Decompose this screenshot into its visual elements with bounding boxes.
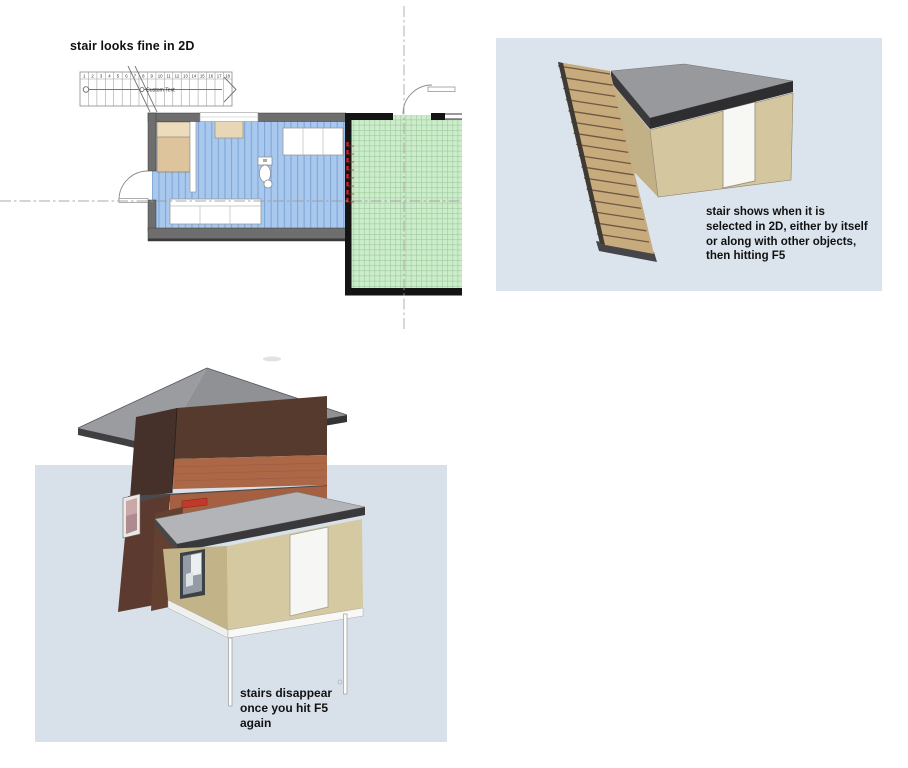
svg-text:17: 17 bbox=[217, 73, 222, 78]
room-green bbox=[348, 115, 462, 291]
floor-plan-drawing: 1 2 3 4 5 6 7 8 9 10 11 12 13 14 15 16 1… bbox=[0, 0, 470, 340]
bug-report-image: stair looks fine in 2D 1 2 3 4 5 6 7 bbox=[0, 0, 908, 768]
addition-window bbox=[180, 549, 205, 599]
sink bbox=[264, 180, 272, 188]
render-bottom-caption: stairs disappear once you hit F5 again bbox=[240, 686, 400, 731]
svg-text:18: 18 bbox=[225, 73, 230, 78]
artifact-smudge bbox=[263, 357, 281, 362]
toilet bbox=[258, 157, 272, 182]
svg-text:15: 15 bbox=[200, 73, 205, 78]
bed bbox=[157, 122, 190, 172]
render-top-caption: stair shows when it is selected in 2D, e… bbox=[706, 205, 888, 264]
svg-text:14: 14 bbox=[192, 73, 197, 78]
stair-label: Custom Text bbox=[146, 88, 175, 94]
sofa bbox=[170, 199, 261, 224]
hut-3d bbox=[611, 64, 793, 197]
svg-text:13: 13 bbox=[183, 73, 188, 78]
label-marker bbox=[140, 88, 144, 92]
window-top bbox=[200, 113, 258, 122]
upper-left-wall bbox=[130, 408, 177, 498]
table bbox=[283, 128, 343, 155]
house-window bbox=[123, 494, 140, 538]
svg-text:11: 11 bbox=[166, 73, 171, 78]
walk-line-start bbox=[83, 87, 89, 93]
room-blue bbox=[152, 117, 346, 237]
stilt-right bbox=[344, 614, 348, 694]
svg-text:10: 10 bbox=[158, 73, 163, 78]
wall-shadow bbox=[148, 239, 348, 242]
hut-door bbox=[723, 102, 755, 188]
svg-text:16: 16 bbox=[208, 73, 213, 78]
door-green bbox=[403, 85, 455, 114]
stair-2d-plan: 1 2 3 4 5 6 7 8 9 10 11 12 13 14 15 16 1… bbox=[80, 66, 236, 112]
dresser bbox=[215, 121, 243, 138]
divider-wall bbox=[190, 121, 196, 192]
svg-text:12: 12 bbox=[175, 73, 180, 78]
stilt-left bbox=[229, 638, 233, 706]
addition-door bbox=[290, 527, 328, 616]
window-green-top bbox=[445, 114, 462, 120]
door-left bbox=[119, 171, 148, 203]
